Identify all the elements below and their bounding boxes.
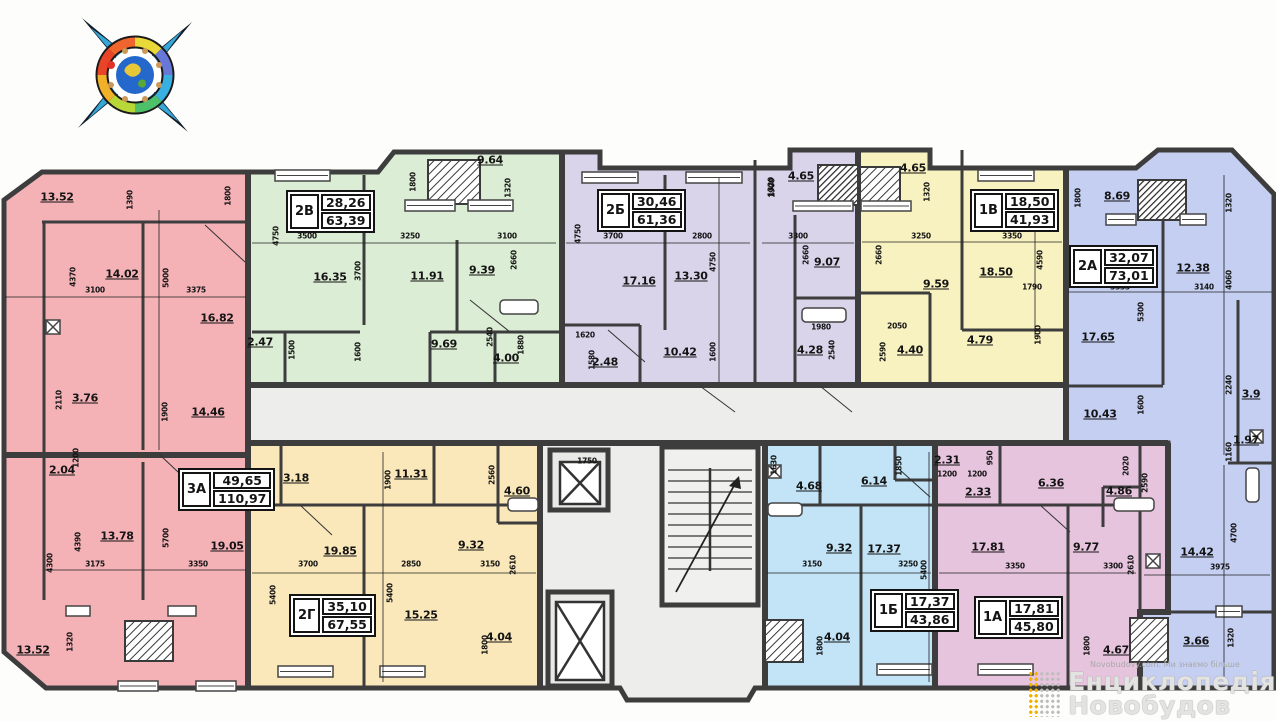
bathtub-icon — [768, 503, 802, 516]
watermark-dots-logo — [1028, 671, 1062, 717]
bathtub-icon — [508, 498, 538, 511]
watermark-line2: Новобудов — [1068, 694, 1276, 718]
bathtub-icon — [500, 300, 538, 314]
developer-compass-logo — [62, 12, 208, 138]
floor-plan-page: 13.5214.0216.823.7614.462.0413.7819.0513… — [0, 0, 1276, 721]
bathtub-icon — [1114, 498, 1154, 511]
apartment-regions — [4, 150, 1274, 700]
bathtub-icon — [802, 308, 846, 322]
staircase-icon — [662, 447, 758, 605]
bathtub-icon — [1246, 468, 1259, 502]
watermark-title: Енциклопедія Новобудов — [1068, 670, 1276, 718]
watermark: Novobudovy.com. Ми знаємо більше Енцикло… — [1028, 660, 1276, 718]
